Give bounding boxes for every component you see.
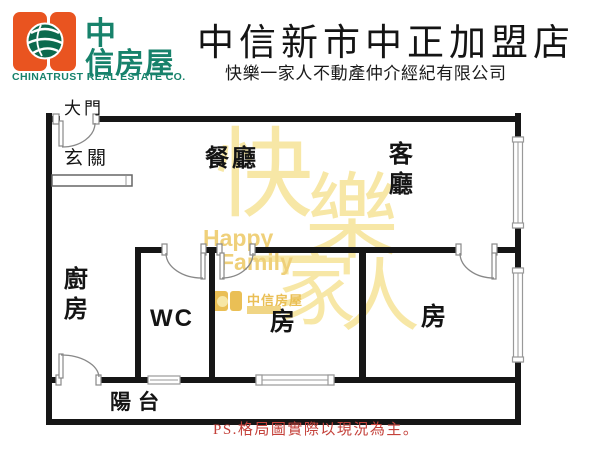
wall-top bbox=[95, 116, 521, 122]
label-wc: WC bbox=[150, 305, 194, 333]
wall-interior bbox=[253, 247, 460, 253]
wall-wc-right bbox=[209, 247, 215, 383]
entry-cabinet bbox=[52, 175, 132, 186]
wall-balcony bbox=[180, 377, 257, 383]
label-entry: 玄關 bbox=[64, 148, 110, 170]
floorplan-drawing bbox=[0, 0, 600, 450]
label-balcony: 陽台 bbox=[110, 390, 166, 415]
label-bedroom-right: 房 bbox=[421, 303, 446, 333]
balcony-door bbox=[56, 354, 101, 385]
label-main-door: 大門 bbox=[64, 99, 104, 119]
label-bedroom-middle: 房 bbox=[270, 308, 295, 338]
window-wc bbox=[148, 376, 180, 384]
wall-left bbox=[46, 113, 52, 425]
bedroom-middle-door bbox=[217, 244, 255, 279]
bedroom-right-door bbox=[456, 244, 497, 279]
label-dining-room: 餐廳 bbox=[205, 145, 259, 173]
wc-door bbox=[162, 244, 206, 279]
wall-wc-left bbox=[135, 247, 141, 383]
label-kitchen: 廚房 bbox=[58, 266, 86, 326]
label-living-room: 客廳 bbox=[383, 141, 411, 201]
window-right-bottom bbox=[513, 268, 524, 362]
disclaimer-note: PS.格局圖實際以現況為主。 bbox=[213, 422, 419, 440]
floorplan-flyer: { "header": { "logo": { "icon": "globe-i… bbox=[0, 0, 600, 450]
window-bedroom-middle bbox=[256, 375, 334, 385]
window-right-top bbox=[513, 137, 524, 228]
wall-room-divider bbox=[359, 247, 366, 383]
